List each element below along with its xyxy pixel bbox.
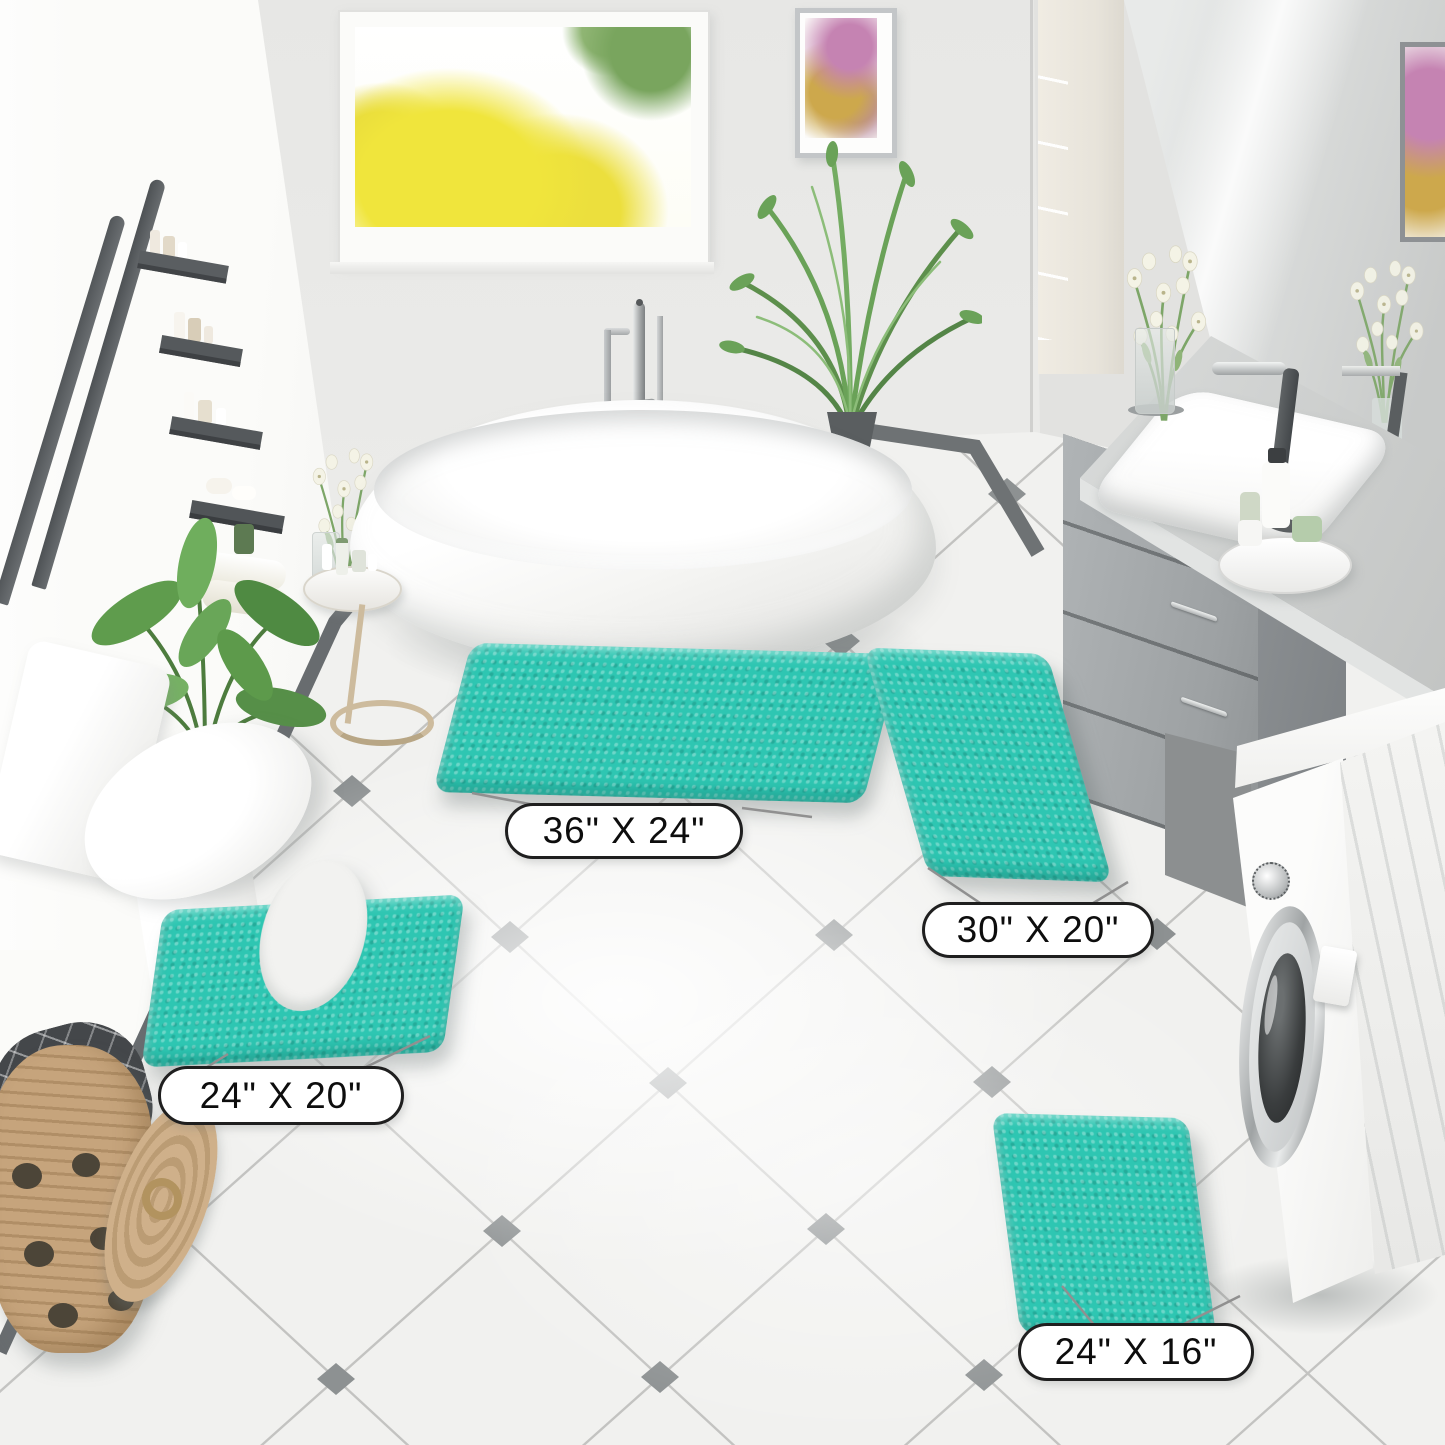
size-label-24x20: 24" X 20" — [158, 1066, 404, 1125]
size-label-30x20: 30" X 20" — [922, 902, 1154, 958]
size-label-24x16: 24" X 16" — [1018, 1323, 1254, 1381]
bathroom-product-photo: 36" X 24" 30" X 20" 24" X 20" 24" X 16" — [0, 0, 1445, 1445]
label-leader-lines — [0, 0, 1445, 1445]
size-label-36x24: 36" X 24" — [505, 803, 743, 859]
